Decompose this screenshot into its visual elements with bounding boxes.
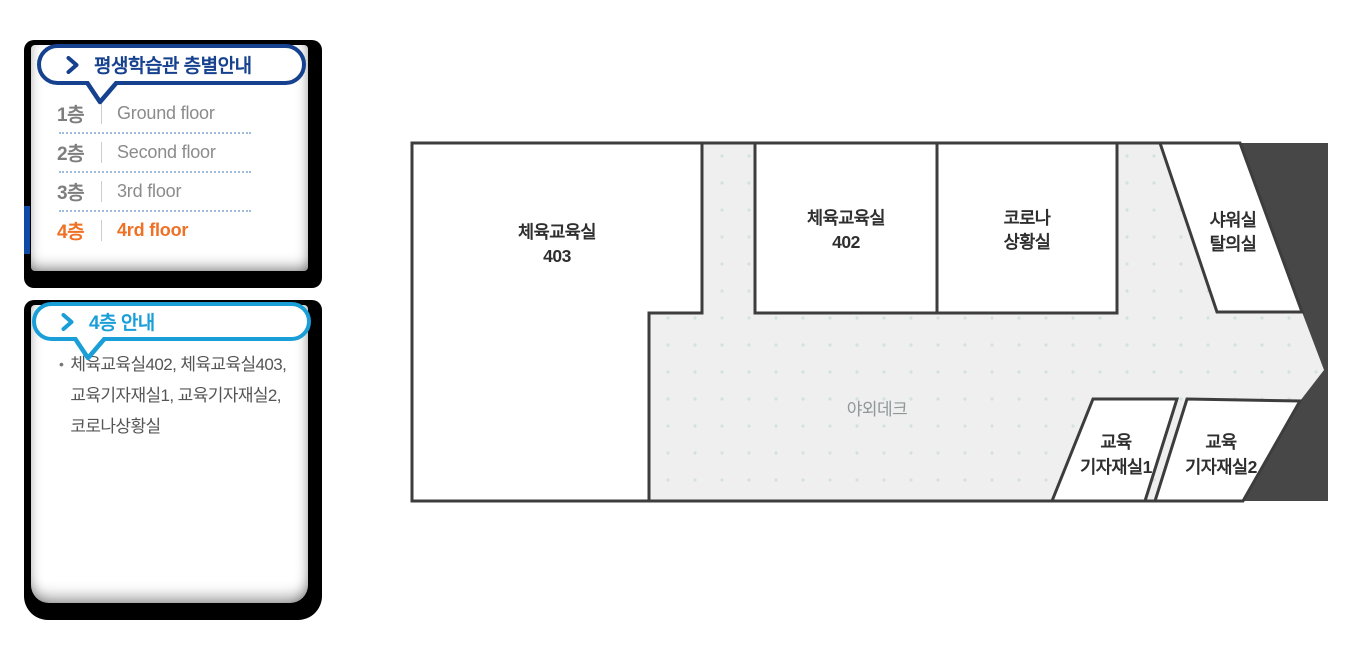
room-corona-label: 코로나 <box>1004 208 1051 228</box>
floor-row-4f-active[interactable]: 4층 4rd floor <box>57 212 255 249</box>
speech-tail <box>84 81 120 106</box>
room-equip1-label: 교육 <box>1100 432 1132 452</box>
floor-name: 3rd floor <box>117 181 181 202</box>
speech-tail <box>72 337 108 362</box>
separator-bar <box>101 181 102 202</box>
room-equip2-label: 교육 <box>1205 432 1237 452</box>
room-403-label: 체육교육실 <box>518 222 596 242</box>
floor-guide-panel: 1층 Ground floor 2층 Second floor 3층 3rd f… <box>24 40 322 288</box>
active-floor-indicator <box>24 206 30 254</box>
floor-info-title-pill: 4층 안내 <box>32 302 311 341</box>
floor-guide-title: 평생학습관 층별안내 <box>94 51 252 78</box>
room-corona-label: 상황실 <box>1004 232 1051 252</box>
floor-name: Ground floor <box>117 103 215 124</box>
chevron-right-icon <box>66 56 79 74</box>
room-shower-label: 샤워실 <box>1210 210 1257 230</box>
room-402-label: 체육교육실 <box>807 208 885 228</box>
room-402 <box>755 143 937 313</box>
floor-name: Second floor <box>117 142 216 163</box>
floor-list: 1층 Ground floor 2층 Second floor 3층 3rd f… <box>57 95 255 249</box>
floor-info-panel: • 체육교육실402, 체육교육실403, 교육기자재실1, 교육기자재실2, … <box>24 300 322 620</box>
separator-bar <box>101 103 102 124</box>
floor-number: 2층 <box>57 139 97 166</box>
room-corona <box>937 143 1117 313</box>
bullet-dot: • <box>59 349 63 442</box>
chevron-right-icon <box>61 313 74 331</box>
room-403-label: 403 <box>543 246 571 266</box>
separator-bar <box>101 142 102 163</box>
floor-row-2f[interactable]: 2층 Second floor <box>57 134 255 171</box>
floor-info-title: 4층 안내 <box>89 308 155 335</box>
room-equip2-label: 기자재실2 <box>1185 457 1257 477</box>
floor-plan: 체육교육실 403 체육교육실 402 코로나 상황실 샤워실 탈의실 야외데크… <box>410 141 1330 505</box>
room-402-label: 402 <box>832 232 860 252</box>
floor-number: 3층 <box>57 178 97 205</box>
page: 1층 Ground floor 2층 Second floor 3층 3rd f… <box>0 0 1365 650</box>
separator-bar <box>101 220 102 241</box>
deck-label: 야외데크 <box>847 400 908 419</box>
floor-name: 4rd floor <box>117 220 188 241</box>
floor-number: 4층 <box>57 217 97 244</box>
floor-info-text: • 체육교육실402, 체육교육실403, 교육기자재실1, 교육기자재실2, … <box>59 349 292 442</box>
room-shower-label: 탈의실 <box>1210 234 1257 254</box>
floor-row-3f[interactable]: 3층 3rd floor <box>57 173 255 210</box>
floor-guide-title-pill: 평생학습관 층별안내 <box>37 44 306 85</box>
room-equip1-label: 기자재실1 <box>1080 457 1152 477</box>
floor-info-rooms: 체육교육실402, 체육교육실403, 교육기자재실1, 교육기자재실2, 코로… <box>70 349 292 442</box>
